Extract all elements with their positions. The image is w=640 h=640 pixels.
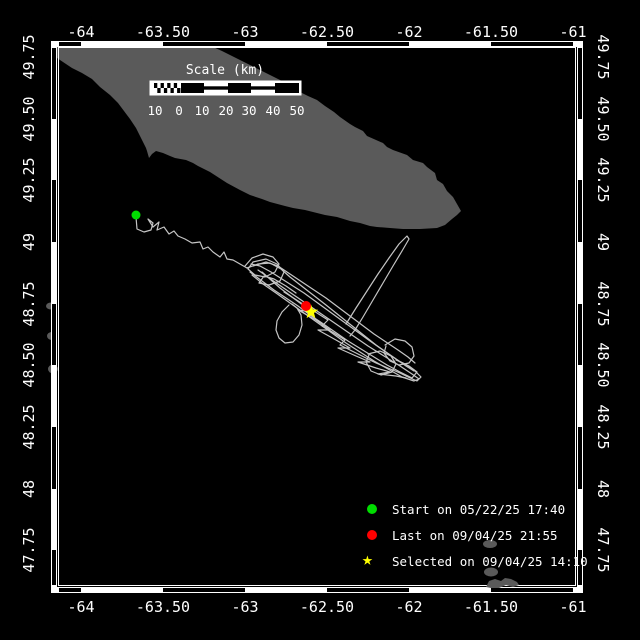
lon-label-bottom-4: -62 <box>369 599 449 615</box>
lat-label-right-8: 47.75 <box>595 510 611 590</box>
frame-segment <box>578 304 582 365</box>
lon-label-top-1: -63.50 <box>123 24 203 40</box>
lon-label-top-3: -62.50 <box>287 24 367 40</box>
lat-label-left-8: 47.75 <box>21 510 37 590</box>
frame-segment <box>52 427 56 489</box>
lon-label-bottom-3: -62.50 <box>287 599 367 615</box>
frame-segment <box>52 48 56 119</box>
frame-segment <box>578 180 582 242</box>
lon-label-top-5: -61.50 <box>451 24 531 40</box>
scale-checker <box>161 83 164 88</box>
lon-label-top-2: -63 <box>205 24 285 40</box>
frame-segment <box>327 42 409 46</box>
frame-segment <box>52 304 56 365</box>
frame-segment <box>578 48 582 119</box>
track-line <box>253 262 415 363</box>
scale-checker <box>154 83 157 88</box>
scale-segment-stripe <box>251 86 275 89</box>
drifter-track-map-figure: -64 -63.50 -63 -62.50 -62 -61.50 -61 -64… <box>0 0 640 640</box>
start-position-marker <box>132 211 141 220</box>
scale-segment-solid <box>228 83 251 93</box>
last-marker-icon <box>367 530 377 540</box>
frame-segment <box>52 550 56 585</box>
track-line <box>276 304 302 343</box>
frame-segment <box>163 42 245 46</box>
frame-segment <box>327 588 409 592</box>
lon-label-bottom-1: -63.50 <box>123 599 203 615</box>
track-line <box>136 217 247 268</box>
scale-checker <box>167 83 170 88</box>
lon-label-bottom-5: -61.50 <box>451 599 531 615</box>
legend-label-last: Last on 09/04/25 21:55 <box>392 528 558 544</box>
lon-label-bottom-2: -63 <box>205 599 285 615</box>
frame-segment <box>163 588 245 592</box>
scale-checker <box>171 88 174 93</box>
frame-segment <box>491 42 573 46</box>
scale-checker <box>164 88 167 93</box>
scale-segment-stripe <box>204 86 228 89</box>
scale-checker <box>174 83 177 88</box>
scale-segment-solid <box>181 83 204 93</box>
map-canvas <box>0 0 640 640</box>
track-line <box>346 236 409 336</box>
frame-segment <box>491 588 573 592</box>
scale-checker <box>177 88 180 93</box>
scale-tick-6: 50 <box>277 104 317 117</box>
legend-label-selected: Selected on 09/04/25 14:10 <box>392 554 588 570</box>
scale-segment-solid <box>275 83 299 93</box>
legend-label-start: Start on 05/22/25 17:40 <box>392 502 565 518</box>
lon-label-top-4: -62 <box>369 24 449 40</box>
scale-checker <box>157 88 160 93</box>
scale-bar-title: Scale (km) <box>155 64 295 78</box>
frame-segment <box>52 180 56 242</box>
lon-label-top-0: -64 <box>41 24 121 40</box>
frame-segment <box>59 588 81 592</box>
selected-star-icon: ★ <box>362 551 373 569</box>
islet <box>486 578 519 588</box>
lon-label-bottom-6: -61 <box>533 599 613 615</box>
lon-label-bottom-0: -64 <box>41 599 121 615</box>
last-position-marker <box>301 301 311 311</box>
frame-segment <box>59 42 81 46</box>
start-marker-icon <box>367 504 377 514</box>
frame-segment <box>578 427 582 489</box>
